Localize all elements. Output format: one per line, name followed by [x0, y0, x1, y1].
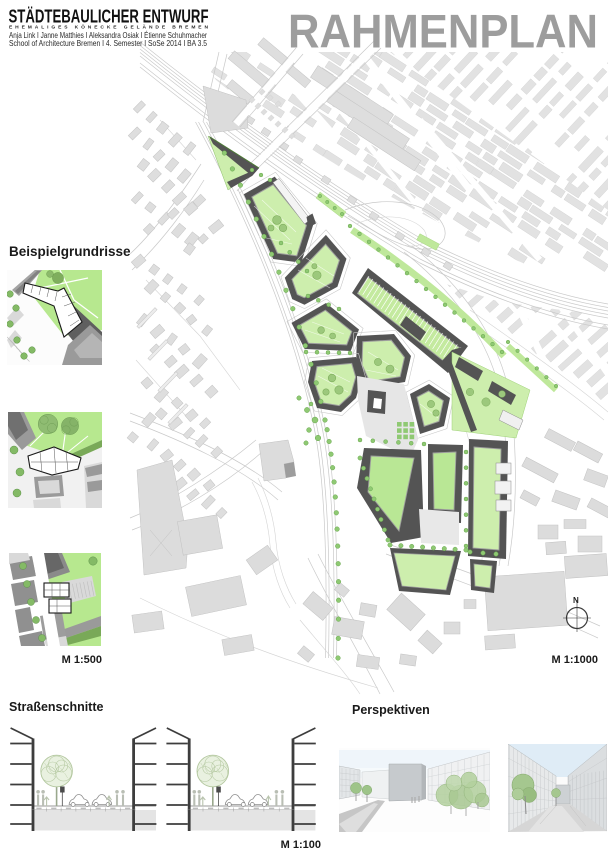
svg-text:RAHMENPLAN: RAHMENPLAN	[288, 5, 598, 58]
svg-text:STÄDTEBAULICHER ENTWURF: STÄDTEBAULICHER ENTWURF	[9, 7, 209, 27]
svg-text:M 1:100: M 1:100	[281, 839, 321, 851]
svg-text:M 1:500: M 1:500	[62, 654, 102, 666]
svg-text:Straßenschnitte: Straßenschnitte	[9, 700, 104, 714]
svg-text:M 1:1000: M 1:1000	[552, 654, 598, 666]
svg-text:N: N	[573, 596, 579, 605]
svg-text:Perspektiven: Perspektiven	[352, 703, 430, 717]
svg-text:Beispielgrundrisse: Beispielgrundrisse	[9, 244, 131, 259]
svg-text:School of Architecture Bremen: School of Architecture Bremen I 4. Semes…	[9, 38, 207, 48]
